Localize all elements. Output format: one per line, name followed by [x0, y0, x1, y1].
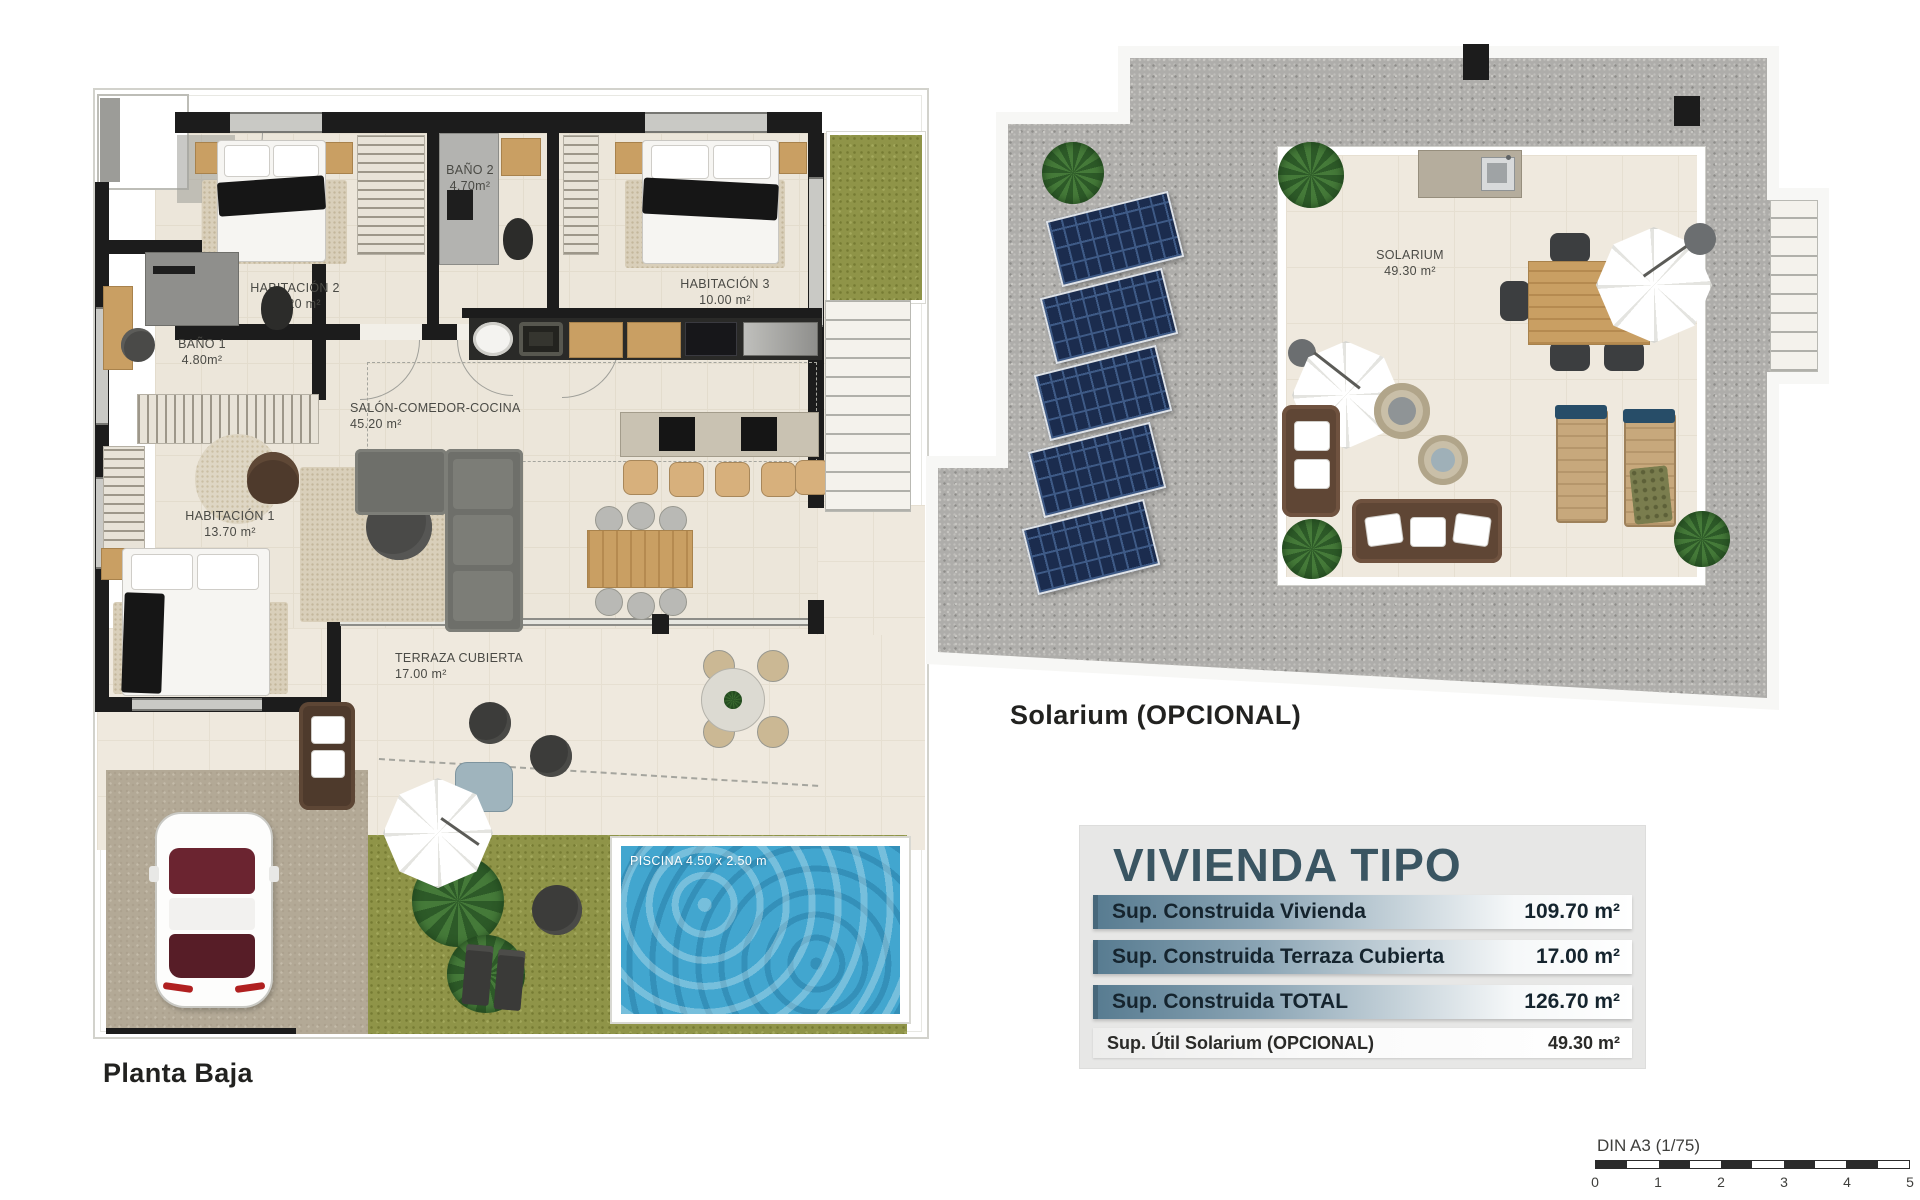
- roof-marker: [1463, 44, 1489, 80]
- window-hab3: [645, 112, 767, 133]
- fridge: [685, 322, 737, 356]
- summary-row: Sup. Construida Vivienda 109.70 m²: [1093, 895, 1632, 929]
- sofa-chaise: [355, 449, 447, 515]
- bano1-shower: [145, 252, 239, 326]
- dining-chair: [627, 592, 655, 620]
- door-gap-hab2: [360, 324, 422, 340]
- summary-row-label: Sup. Construida Terraza Cubierta: [1112, 945, 1444, 969]
- deck-chair: [1550, 233, 1590, 263]
- bano2-light: [447, 190, 473, 220]
- garden-lounger: [461, 944, 493, 1006]
- driveway-curb: [106, 1028, 296, 1034]
- dining-chair: [595, 588, 623, 616]
- bano1-sink: [121, 328, 155, 362]
- solarium-stairs: [1770, 200, 1818, 372]
- sofa-body: [445, 449, 523, 632]
- oven: [519, 322, 563, 356]
- exterior-stairs: [825, 300, 911, 512]
- summary-row-value: 126.70 m²: [1524, 990, 1620, 1014]
- terrace-sofa: [299, 702, 355, 810]
- summary-row-value: 17.00 m²: [1536, 945, 1620, 969]
- sink: [1481, 157, 1515, 191]
- window-hab2: [230, 112, 322, 133]
- kitchen-cabinet-steel: [743, 322, 818, 356]
- kitchen-island: [620, 412, 819, 457]
- summary-row-label: Sup. Útil Solarium (OPCIONAL): [1107, 1033, 1374, 1054]
- hab2-wardrobe: [357, 135, 425, 255]
- summary-row-label: Sup. Construida TOTAL: [1112, 990, 1348, 1014]
- summary-title: VIVIENDA TIPO: [1113, 838, 1462, 892]
- bano1-label: BAÑO 14.80m²: [157, 336, 247, 368]
- summary-panel: VIVIENDA TIPO Sup. Construida Vivienda 1…: [1080, 826, 1645, 1068]
- wall-bano1-right: [312, 240, 326, 400]
- dining-chair: [627, 502, 655, 530]
- wall-left: [95, 182, 109, 707]
- deck-chair: [1550, 341, 1590, 371]
- planta-baja-plan: PISCINA 4.50 x 2.50 m: [93, 88, 929, 1039]
- deck-plant: [1674, 511, 1730, 567]
- deck-plant: [1278, 142, 1344, 208]
- pool: PISCINA 4.50 x 2.50 m: [612, 838, 909, 1022]
- terrace-parasol: [383, 778, 493, 888]
- kitchen-cabinet: [569, 322, 623, 358]
- dining-table: [587, 530, 693, 588]
- planta-baja-caption: Planta Baja: [103, 1058, 253, 1089]
- scale-tick: 0: [1591, 1174, 1599, 1190]
- hab2-label: HABITACIÓN 210.20 m²: [215, 280, 375, 312]
- terrace-chair: [757, 716, 789, 748]
- deck-chair: [1604, 341, 1644, 371]
- summary-row: Sup. Construida Terraza Cubierta 17.00 m…: [1093, 940, 1632, 974]
- terrace-pouf: [530, 735, 572, 777]
- scale-bar: DIN A3 (1/75) 0 1 2 3 4 5: [1595, 1136, 1910, 1188]
- bar-stool: [761, 462, 796, 497]
- car-taillight: [163, 982, 194, 993]
- hab1-label: HABITACIÓN 113.70 m²: [155, 508, 305, 540]
- summary-row-value: 49.30 m²: [1548, 1033, 1620, 1054]
- roof-marker: [1674, 96, 1700, 126]
- cooktop: [741, 417, 777, 451]
- summary-row: Sup. Construida TOTAL 126.70 m²: [1093, 985, 1632, 1019]
- terraza-label: TERRAZA CUBIERTA17.00 m²: [395, 650, 555, 682]
- deck-counter: [1418, 150, 1522, 198]
- hab1-armchair: [247, 452, 299, 504]
- plan-sheet: PISCINA 4.50 x 2.50 m: [0, 0, 1920, 1200]
- cooktop: [659, 417, 695, 451]
- gravel-plant: [1042, 142, 1104, 204]
- washing-machine: [473, 322, 513, 356]
- bano2-wc: [503, 218, 533, 260]
- scale-tick: 1: [1654, 1174, 1662, 1190]
- window-right: [809, 177, 823, 327]
- car-mirror: [149, 866, 159, 882]
- bar-stool: [715, 462, 750, 497]
- car-taillight: [235, 982, 266, 993]
- scale-bar-segments: [1595, 1160, 1910, 1169]
- hab1-bed: [122, 548, 270, 696]
- pool-label: PISCINA 4.50 x 2.50 m: [630, 854, 767, 868]
- deck-plant: [1282, 519, 1342, 579]
- summary-row-optional: Sup. Útil Solarium (OPCIONAL) 49.30 m²: [1093, 1028, 1632, 1058]
- bano2-label: BAÑO 24.70m²: [425, 162, 515, 194]
- car-windshield: [169, 848, 255, 894]
- deck-chair: [1500, 281, 1530, 321]
- car: [155, 812, 273, 1008]
- bano1-fixture: [153, 266, 195, 274]
- pool-water: [621, 846, 900, 1014]
- summary-row-value: 109.70 m²: [1524, 900, 1620, 924]
- glass-wall-post-right: [808, 600, 824, 634]
- scale-tick: 3: [1780, 1174, 1788, 1190]
- deck-wicker-table: [1374, 383, 1430, 439]
- wall-kitchen: [462, 308, 822, 318]
- hab2-nightstand: [325, 142, 353, 174]
- kitchen-cabinet: [627, 322, 681, 358]
- bano1-wc: [261, 286, 293, 330]
- scale-bar-label: DIN A3 (1/75): [1597, 1136, 1700, 1156]
- terrace-pouf: [532, 885, 582, 935]
- hab3-nightstand: [615, 142, 643, 174]
- car-roof: [169, 898, 255, 930]
- sun-lounger: [1556, 409, 1608, 523]
- terrace-table: [701, 668, 765, 732]
- scale-tick: 4: [1843, 1174, 1851, 1190]
- side-grass-strip: [830, 135, 922, 300]
- deck-wicker-table-small: [1418, 435, 1468, 485]
- bar-stool: [623, 460, 658, 495]
- solarium-label: SOLARIUM49.30 m²: [1330, 247, 1490, 279]
- solarium-deck: SOLARIUM49.30 m²: [1278, 147, 1705, 585]
- deck-sofa-bottom: [1352, 499, 1502, 563]
- hab3-label: HABITACIÓN 310.00 m²: [645, 276, 805, 308]
- scale-tick: 5: [1906, 1174, 1914, 1190]
- hab3-wardrobe: [563, 135, 599, 255]
- kitchen-counter: [469, 318, 822, 360]
- hab2-bed: [217, 140, 326, 262]
- terrace-chair: [757, 650, 789, 682]
- porch-wall: [100, 98, 120, 182]
- garden-lounger: [493, 949, 525, 1011]
- hab3-nightstand: [779, 142, 807, 174]
- side-terrace-floor: [817, 505, 925, 635]
- window-hab1: [132, 698, 262, 711]
- glass-wall-post: [652, 614, 669, 634]
- deck-parasol-base: [1684, 223, 1716, 255]
- car-mirror: [269, 866, 279, 882]
- dining-chair: [659, 588, 687, 616]
- scale-tick: 2: [1717, 1174, 1725, 1190]
- car-rear-window: [169, 934, 255, 978]
- summary-row-label: Sup. Construida Vivienda: [1112, 900, 1366, 924]
- solarium-caption: Solarium (OPCIONAL): [1010, 700, 1301, 731]
- sun-lounger: [1624, 413, 1676, 527]
- terrace-pouf: [469, 702, 511, 744]
- hab3-bed: [642, 140, 779, 264]
- bar-stool: [669, 462, 704, 497]
- deck-sofa: [1282, 405, 1340, 517]
- wall-hab1-right: [327, 622, 341, 712]
